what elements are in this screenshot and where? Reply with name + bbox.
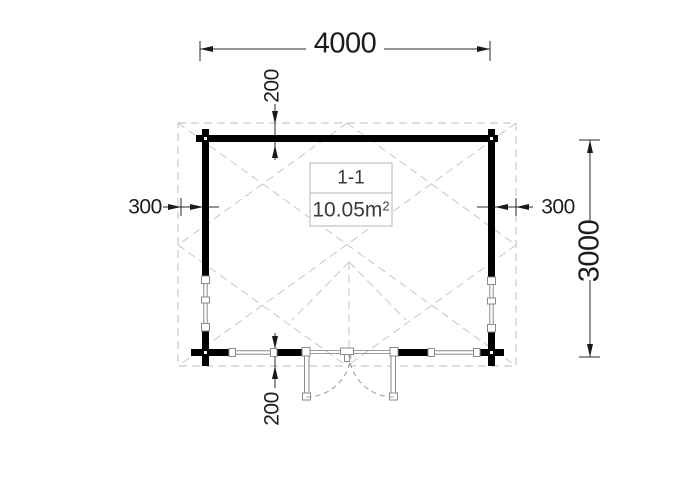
- dim-overhang-left-label: 300: [128, 197, 162, 218]
- dim-overhang-top-label: 200: [262, 69, 283, 103]
- dim-overhang-right: [477, 198, 533, 216]
- double-door: [302, 348, 398, 401]
- room-area-superscript: 2: [382, 199, 389, 214]
- floorplan-canvas: 4000 200 300 300 3000 200 1-1 10.05m2: [0, 0, 700, 495]
- dim-overhang-left: [163, 198, 219, 216]
- dim-depth-right-label: 3000: [576, 220, 605, 283]
- dim-overhang-bottom: [272, 333, 278, 388]
- room-area-value: 10.05m: [312, 199, 382, 222]
- dim-width-top-label: 4000: [314, 30, 377, 59]
- window-right: [488, 277, 496, 332]
- dim-overhang-top: [272, 104, 278, 160]
- window-left: [202, 276, 210, 331]
- door-leaves: [303, 356, 398, 400]
- dim-overhang-bottom-label: 200: [262, 392, 283, 426]
- room-area-label: 10.05m2: [312, 200, 389, 221]
- dim-overhang-right-label: 300: [541, 197, 575, 218]
- door-frame: [302, 348, 398, 362]
- roof-ridge-lines: [178, 123, 516, 366]
- window-front-left: [229, 349, 277, 357]
- window-front-right: [428, 349, 480, 357]
- room-number-label: 1-1: [337, 169, 364, 188]
